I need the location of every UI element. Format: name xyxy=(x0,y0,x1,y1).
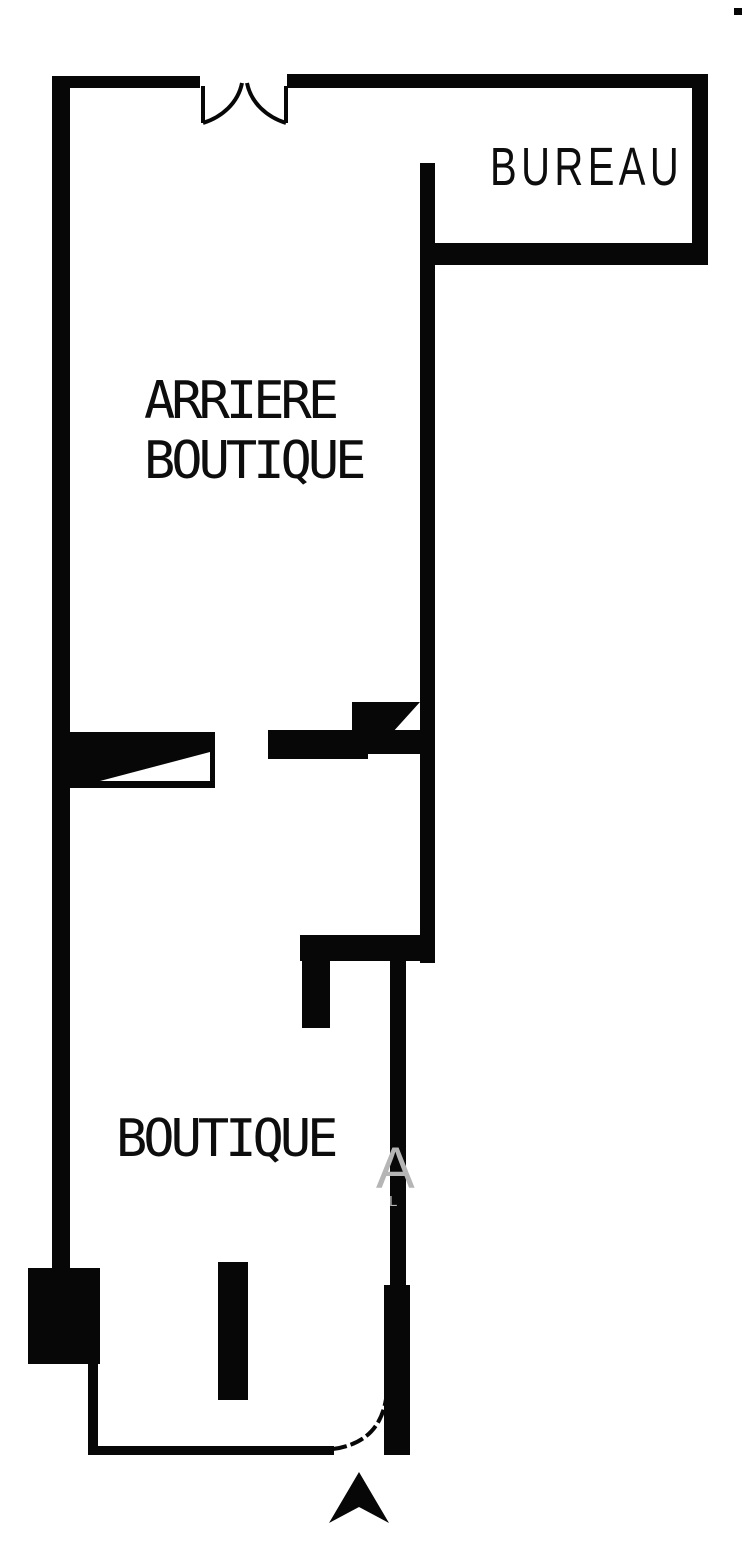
entrance-door-icon xyxy=(333,1399,386,1449)
door-symbols xyxy=(0,0,744,1554)
north-arrow-icon xyxy=(329,1472,389,1523)
double-door-icon xyxy=(203,83,286,123)
floor-plan: BUREAU ARRIERE BOUTIQUE BOUTIQUE A L xyxy=(0,0,744,1554)
watermark-letter-small: L xyxy=(389,1194,397,1209)
watermark-letter-large: A xyxy=(376,1140,415,1198)
